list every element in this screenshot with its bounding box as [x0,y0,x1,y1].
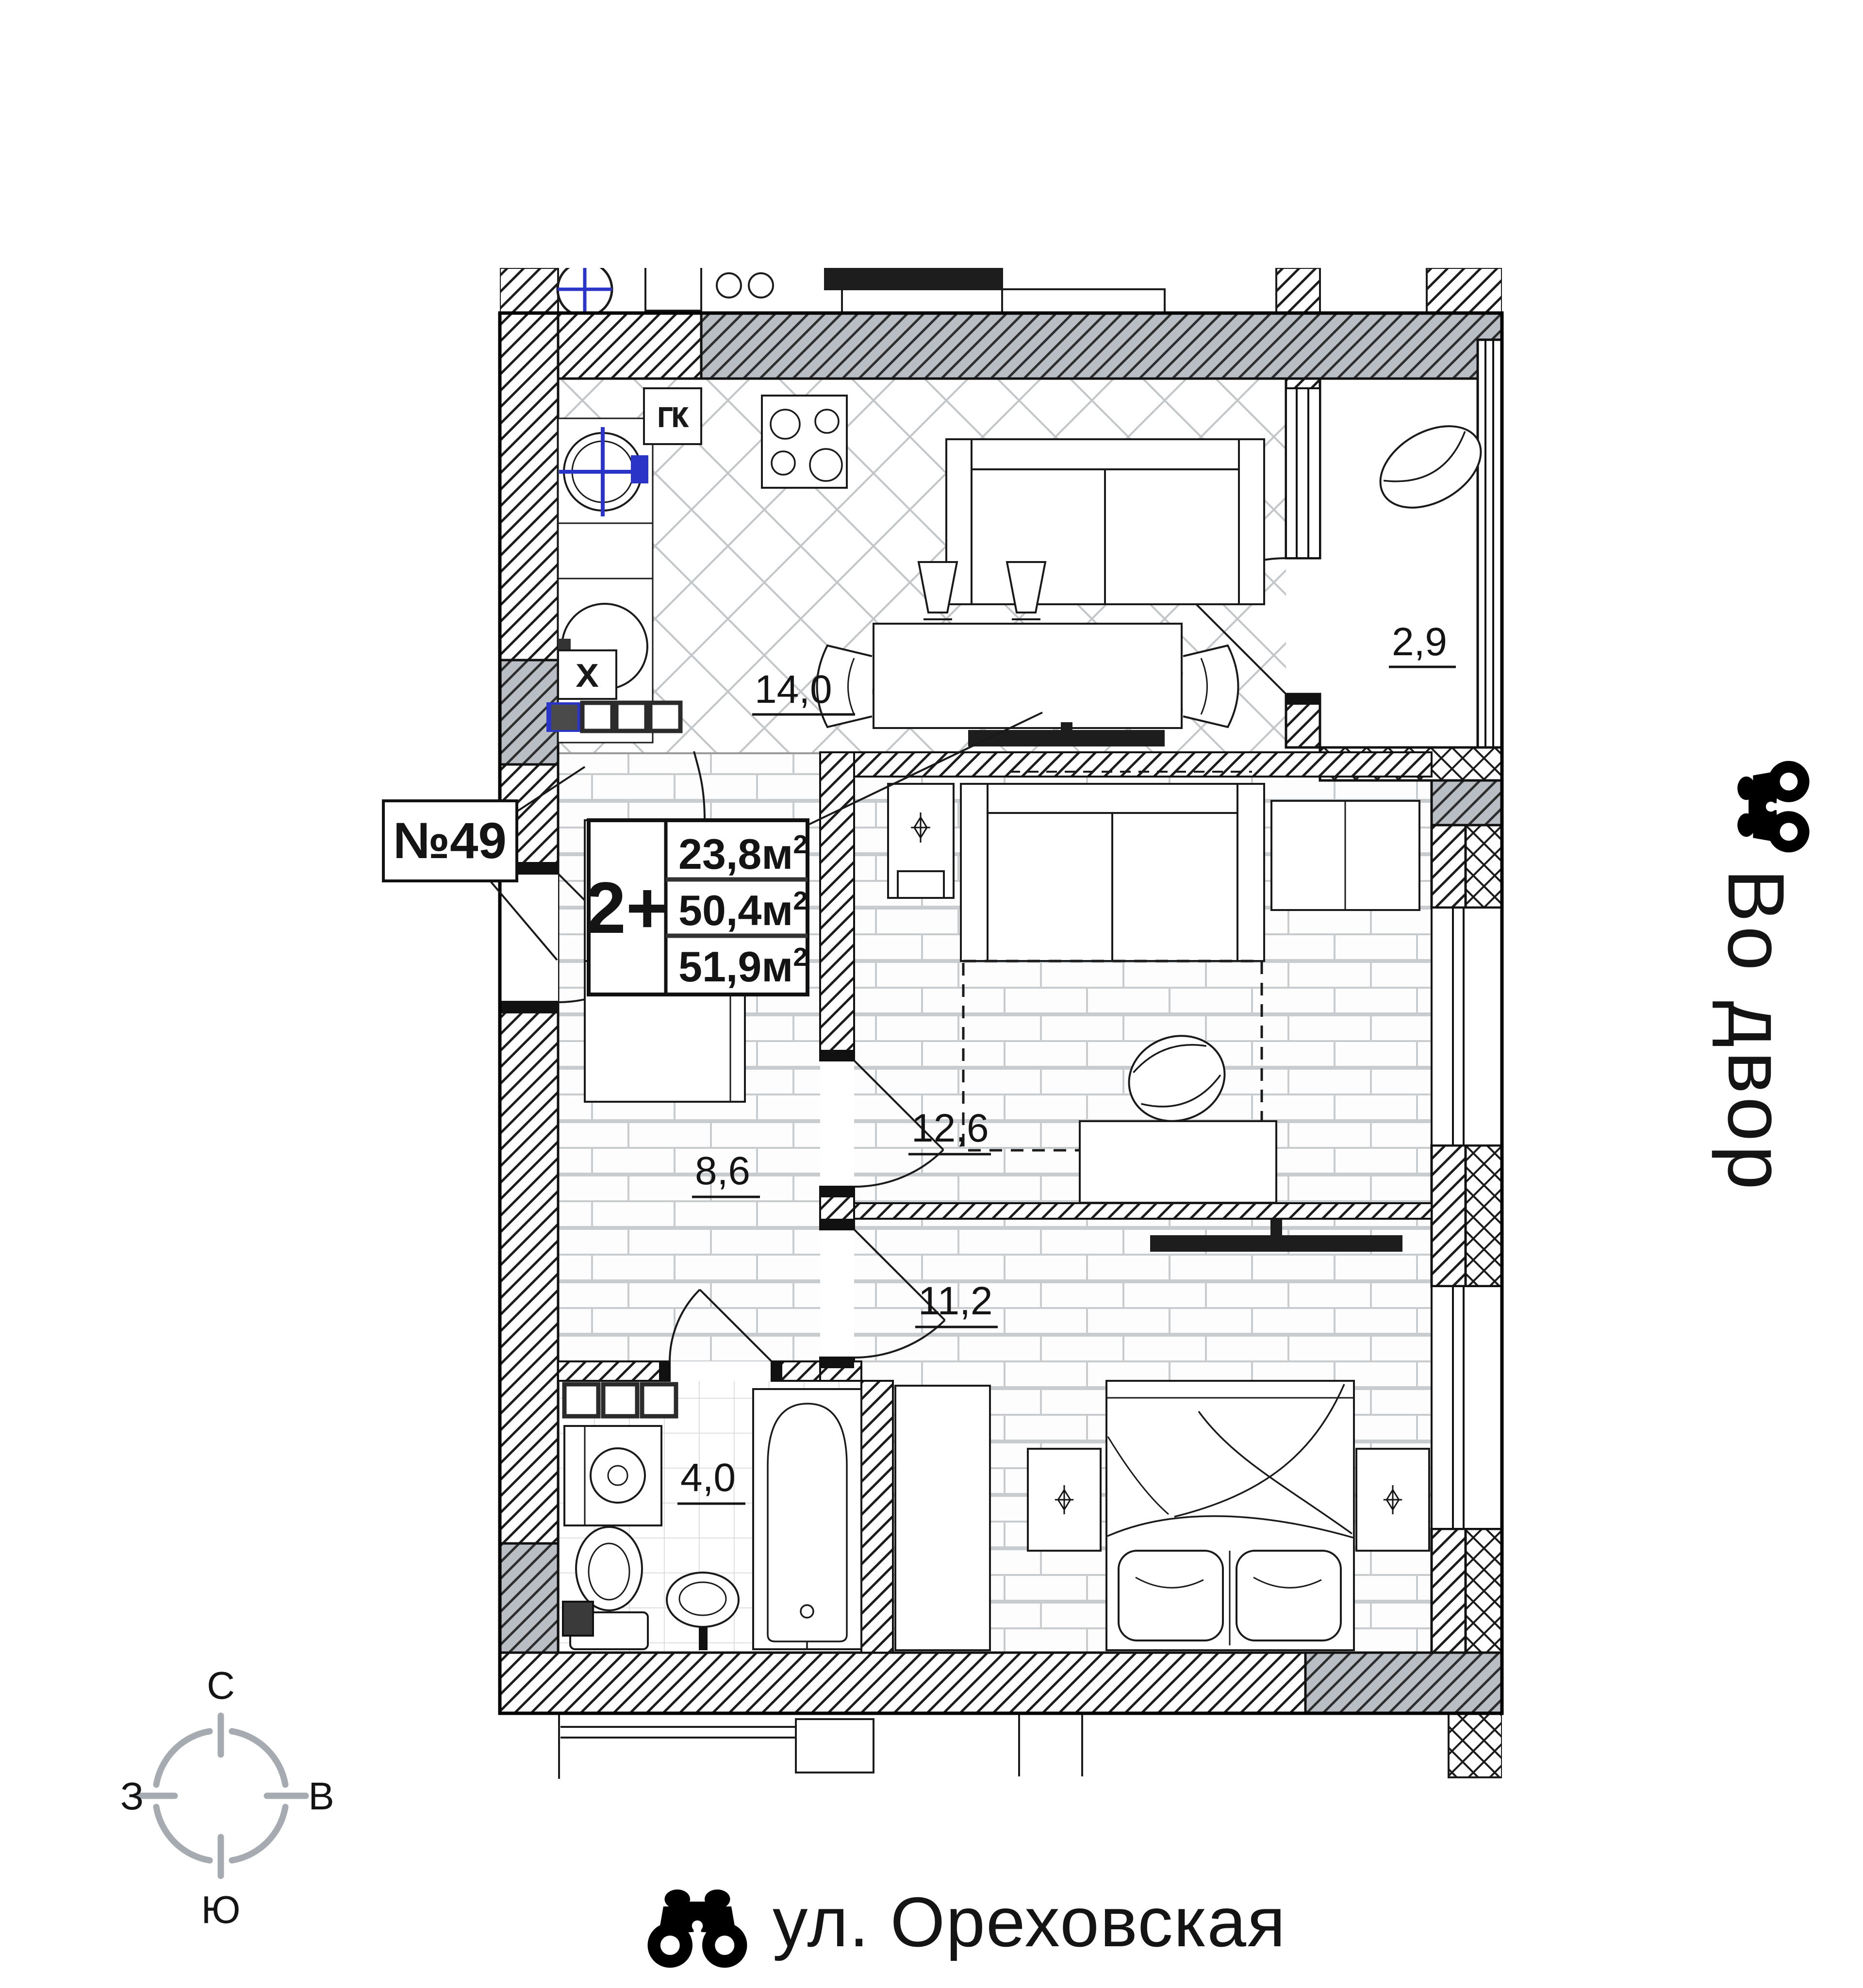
area-total: 50,4м2 [678,886,808,934]
tv-bedroom [1150,1235,1402,1252]
dining-table [874,624,1182,728]
gas-boiler-label: ГК [658,403,688,432]
room-window [1432,908,1502,1145]
room-label-bedroom: 11,2 [918,1279,993,1323]
wall-bottom [500,1653,1305,1713]
towel-dryer [563,1602,593,1636]
wall-kitchen-room [820,752,1432,777]
faucet-mark [631,455,648,483]
nightstand-right [1356,1449,1429,1551]
wall-room-bedroom [854,1203,1432,1219]
room-label-balcony: 2,9 [1392,620,1447,664]
tv-living [968,730,1165,746]
stove [762,396,847,488]
wall-top-exterior [701,313,1502,379]
courtyard-label: Во двор [1712,869,1801,1193]
wall-bath-right [861,1381,893,1653]
wall-bath-top [558,1361,670,1381]
binoculars-icon-street [648,1889,747,1968]
room-label-room: 12,6 [911,1106,989,1150]
desk [1080,1121,1276,1203]
apartment-type: 2+ [585,867,668,948]
washing-machine [564,1426,661,1525]
living-sofa [946,439,1264,604]
compass-south: Ю [201,1888,241,1931]
wall-hall-vertical [820,752,854,1060]
cabinet-row [546,702,680,732]
room-label-bath: 4,0 [680,1456,736,1500]
binoculars-icon-courtyard [1737,761,1809,853]
nightstand-left [1028,1449,1101,1551]
balcony-door-window [1286,388,1320,558]
area-living: 23,8м2 [678,830,808,878]
room-cabinet [888,784,954,898]
annotation-courtyard: Во двор [1712,761,1810,1194]
bedroom-window [1432,1286,1502,1529]
room-sofa [961,784,1264,961]
vent-label: X [577,659,597,693]
annotation-street: ул. Ореховская [648,1883,1286,1968]
compass-east: В [308,1774,334,1818]
compass-north: С [207,1664,235,1707]
room-label-kitchen: 14,0 [755,667,832,712]
bath-shelf-row [564,1384,676,1416]
floor-plan-page: ГК X [0,0,1863,1988]
entry-opening [500,875,558,1001]
compass: С Ю З В [120,1664,334,1931]
apartment-number: №49 [393,812,507,869]
area-overall: 51,9м2 [678,943,808,991]
bed [1106,1381,1354,1650]
bathtub [753,1389,861,1649]
compass-west: З [120,1774,144,1818]
balcony-window [1478,340,1502,747]
bedroom-closet [895,1386,990,1650]
wall-right [1432,780,1502,825]
floor-plan: ГК X [0,0,1863,1988]
street-label: ул. Ореховская [773,1883,1286,1961]
neighbour-unit-below [559,1713,1502,1779]
room-label-hall: 8,6 [695,1149,750,1193]
